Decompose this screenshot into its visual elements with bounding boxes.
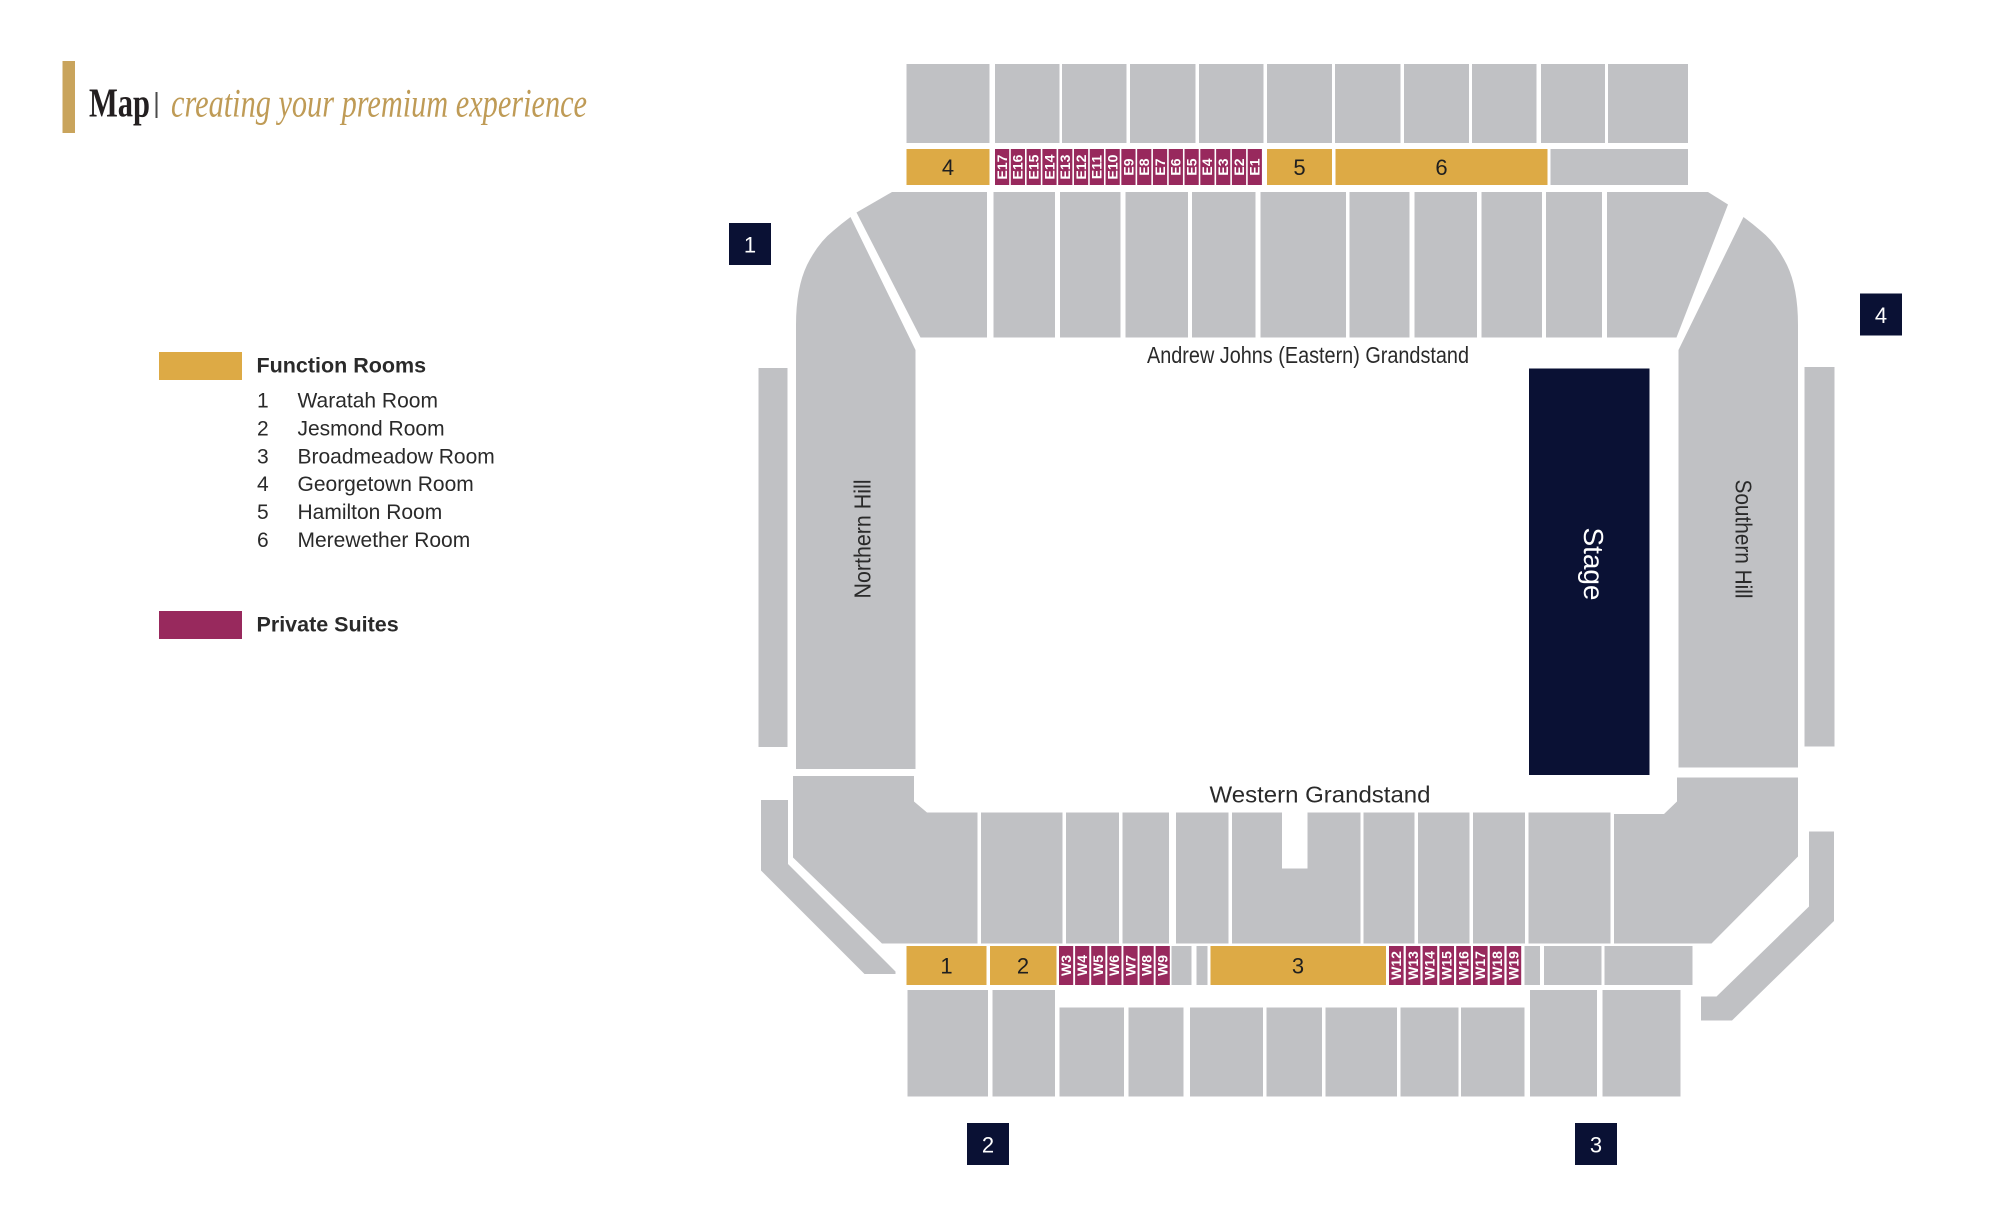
svg-text:E15: E15	[1025, 154, 1041, 179]
svg-text:Waratah Room: Waratah Room	[298, 390, 438, 413]
svg-text:E5: E5	[1183, 158, 1199, 175]
svg-text:3: 3	[1590, 1133, 1602, 1158]
svg-text:Northern Hill: Northern Hill	[850, 480, 876, 599]
svg-text:2: 2	[1017, 954, 1029, 979]
svg-text:Jesmond Room: Jesmond Room	[298, 417, 445, 440]
svg-text:Private Suites: Private Suites	[257, 613, 399, 637]
svg-text:W6: W6	[1106, 955, 1122, 976]
svg-text:E4: E4	[1199, 158, 1215, 175]
svg-text:W14: W14	[1422, 951, 1438, 980]
svg-text:E10: E10	[1104, 154, 1120, 179]
svg-text:Stage: Stage	[1578, 528, 1609, 601]
svg-text:E3: E3	[1215, 158, 1231, 175]
svg-text:1: 1	[744, 233, 756, 258]
svg-text:Function Rooms: Function Rooms	[257, 354, 427, 378]
svg-text:Western Grandstand: Western Grandstand	[1210, 782, 1431, 808]
svg-text:5: 5	[1293, 155, 1305, 180]
svg-text:5: 5	[257, 501, 269, 524]
svg-text:Broadmeadow Room: Broadmeadow Room	[298, 445, 495, 468]
svg-text:3: 3	[1292, 954, 1304, 979]
svg-text:E6: E6	[1168, 158, 1184, 175]
svg-text:1: 1	[940, 954, 952, 979]
svg-text:1: 1	[257, 390, 269, 413]
svg-text:Georgetown Room: Georgetown Room	[298, 473, 474, 496]
svg-text:W4: W4	[1074, 955, 1090, 976]
svg-text:E1: E1	[1247, 158, 1263, 175]
svg-text:W18: W18	[1489, 951, 1505, 980]
svg-text:2: 2	[982, 1133, 994, 1158]
svg-text:2: 2	[257, 417, 269, 440]
svg-text:E7: E7	[1152, 158, 1168, 175]
svg-text:4: 4	[1875, 303, 1887, 328]
svg-text:E14: E14	[1041, 154, 1057, 179]
svg-text:W17: W17	[1472, 951, 1488, 980]
svg-text:Andrew Johns (Eastern) Grandst: Andrew Johns (Eastern) Grandstand	[1147, 342, 1469, 368]
svg-text:6: 6	[257, 529, 269, 552]
svg-text:E12: E12	[1073, 154, 1089, 179]
svg-text:E17: E17	[994, 154, 1010, 179]
svg-text:W9: W9	[1155, 955, 1171, 976]
svg-text:Southern Hill: Southern Hill	[1731, 480, 1757, 599]
svg-text:E13: E13	[1057, 154, 1073, 179]
svg-text:W16: W16	[1455, 951, 1471, 980]
svg-text:E2: E2	[1231, 158, 1247, 175]
svg-text:W7: W7	[1122, 955, 1138, 976]
svg-text:Hamilton Room: Hamilton Room	[298, 501, 443, 524]
svg-text:6: 6	[1435, 155, 1447, 180]
svg-text:E9: E9	[1120, 158, 1136, 175]
svg-text:Merewether Room: Merewether Room	[298, 529, 471, 552]
svg-text:W15: W15	[1439, 951, 1455, 980]
svg-text:W12: W12	[1388, 951, 1404, 980]
svg-text:W5: W5	[1090, 955, 1106, 976]
svg-text:E16: E16	[1010, 154, 1026, 179]
svg-text:W8: W8	[1138, 955, 1154, 976]
svg-text:W3: W3	[1058, 955, 1074, 976]
svg-text:W13: W13	[1405, 951, 1421, 980]
svg-text:Map: Map	[89, 80, 150, 126]
svg-text:3: 3	[257, 445, 269, 468]
svg-text:creating your premium experien: creating your premium experience	[171, 81, 587, 126]
svg-text:E8: E8	[1136, 158, 1152, 175]
svg-text:4: 4	[942, 155, 954, 180]
svg-text:4: 4	[257, 473, 269, 496]
svg-text:W19: W19	[1506, 951, 1522, 980]
svg-text:E11: E11	[1089, 155, 1105, 179]
